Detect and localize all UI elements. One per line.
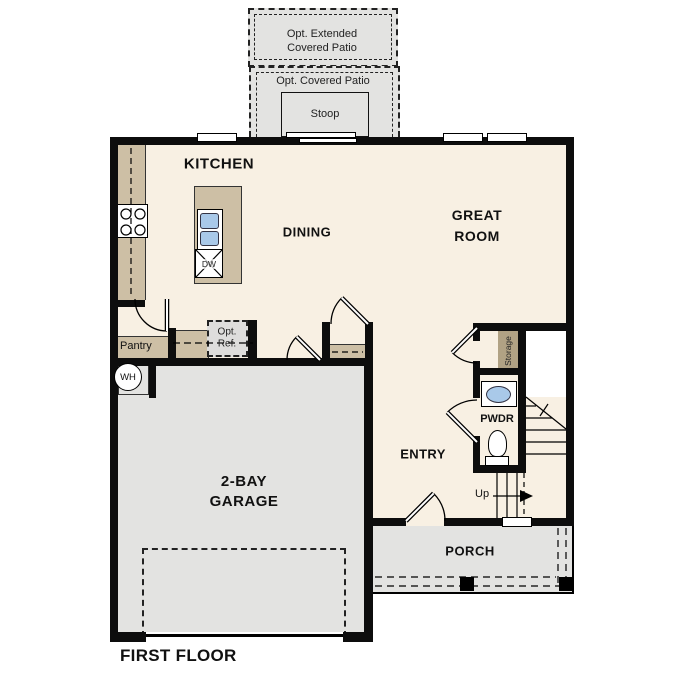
powder-door-arc xyxy=(447,400,477,412)
ext-patio-label: Opt. Extended Covered Patio xyxy=(287,27,357,55)
dining-label: DINING xyxy=(283,225,332,240)
up-arrow-head xyxy=(520,490,533,502)
plan-title: FIRST FLOOR xyxy=(120,646,237,666)
stoop-label: Stoop xyxy=(311,108,340,120)
pantry-door-arc xyxy=(135,299,167,331)
front-door-arc xyxy=(434,493,445,521)
garage-label: 2-BAY GARAGE xyxy=(210,472,279,512)
powder-sink-basin xyxy=(486,386,511,403)
up-label: Up xyxy=(475,488,489,500)
storage-door-arc xyxy=(452,353,477,363)
pantry-label: Pantry xyxy=(120,340,152,352)
porch-post-left xyxy=(460,577,474,591)
line-art-overlay xyxy=(0,0,687,687)
door-arcs xyxy=(135,298,477,521)
powder-label: PWDR xyxy=(480,413,514,425)
coat-closet-door-arc xyxy=(331,298,342,324)
water-heater-circle: WH xyxy=(114,363,142,391)
entry-label: ENTRY xyxy=(400,447,446,462)
storage-label: Storage xyxy=(503,336,513,366)
garage-entry-door-arc xyxy=(287,337,297,360)
dishwasher-label: DW xyxy=(201,259,217,269)
porch-label: PORCH xyxy=(445,544,494,559)
great-room-label: GREAT ROOM xyxy=(452,205,502,247)
floor-plan: WH Opt. Extended Covered Patio Opt. Cove… xyxy=(0,0,687,687)
opt-ref-label: Opt. Ref. xyxy=(218,327,237,350)
cooktop-burner-icons xyxy=(121,209,145,235)
covered-patio-label: Opt. Covered Patio xyxy=(276,75,370,87)
toilet-tank xyxy=(485,456,509,466)
kitchen-label: KITCHEN xyxy=(184,156,254,173)
toilet-bowl xyxy=(488,430,507,457)
porch-post-right xyxy=(559,577,573,591)
